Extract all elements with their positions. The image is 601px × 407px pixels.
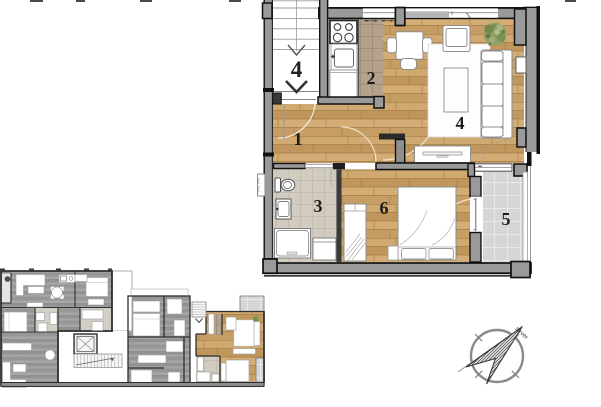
svg-text:5: 5 — [502, 209, 511, 229]
svg-text:2: 2 — [367, 68, 376, 88]
svg-text:4: 4 — [456, 113, 465, 133]
svg-text:6: 6 — [380, 198, 389, 218]
svg-text:1: 1 — [294, 129, 303, 149]
svg-text:4: 4 — [291, 57, 303, 82]
svg-text:3: 3 — [314, 196, 323, 216]
